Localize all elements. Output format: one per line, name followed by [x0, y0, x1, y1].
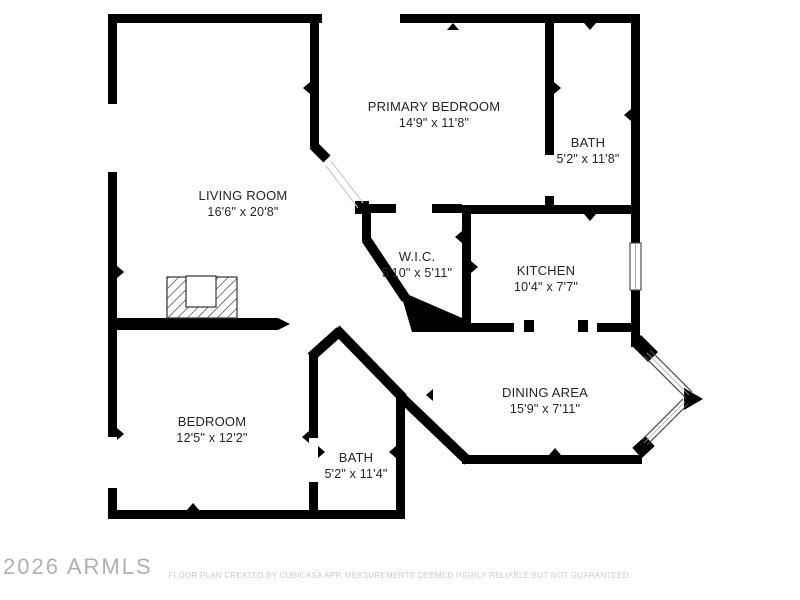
window-symbol-bay-upper [644, 350, 692, 398]
room-dimensions: 5'2" x 11'4" [324, 466, 387, 483]
disclaimer-text: FLOOR PLAN CREATED BY CUBICASA APP. MEAS… [169, 571, 632, 580]
room-dimensions: 5'10" x 5'11" [382, 265, 452, 282]
room-name: PRIMARY BEDROOM [368, 98, 501, 115]
room-name: BATH [556, 134, 619, 151]
armls-watermark: 2026 ARMLS [3, 554, 153, 580]
room-dimensions: 5'2" x 11'8" [556, 151, 619, 168]
room-label-bath-upper: BATH 5'2" x 11'8" [556, 134, 619, 168]
room-label-dining-area: DINING AREA 15'9" x 7'11" [502, 384, 588, 418]
room-label-primary-bedroom: PRIMARY BEDROOM 14'9" x 11'8" [368, 98, 501, 132]
room-label-living-room: LIVING ROOM 16'6" x 20'8" [199, 187, 288, 221]
fireplace-symbol [167, 276, 237, 318]
room-dimensions: 12'5" x 12'2" [176, 430, 247, 447]
room-name: BEDROOM [176, 413, 247, 430]
room-name: DINING AREA [502, 384, 588, 401]
floor-plan-page: PRIMARY BEDROOM 14'9" x 11'8" BATH 5'2" … [0, 0, 800, 600]
room-dimensions: 10'4" x 7'7" [514, 279, 578, 296]
window-symbol-bay-lower [642, 399, 688, 445]
room-name: KITCHEN [514, 262, 578, 279]
room-label-bedroom: BEDROOM 12'5" x 12'2" [176, 413, 247, 447]
floor-plan-drawing [0, 0, 800, 600]
room-name: W.I.C. [382, 248, 452, 265]
window-symbol-kitchen [630, 243, 641, 290]
room-label-wic: W.I.C. 5'10" x 5'11" [382, 248, 452, 282]
room-dimensions: 14'9" x 11'8" [368, 115, 501, 132]
room-name: BATH [324, 449, 387, 466]
room-name: LIVING ROOM [199, 187, 288, 204]
room-label-kitchen: KITCHEN 10'4" x 7'7" [514, 262, 578, 296]
room-dimensions: 16'6" x 20'8" [199, 204, 288, 221]
door-opening-primary-bedroom [326, 161, 363, 208]
bay-window-corner [636, 340, 703, 453]
room-label-bath-lower: BATH 5'2" x 11'4" [324, 449, 387, 483]
room-dimensions: 15'9" x 7'11" [502, 401, 588, 418]
